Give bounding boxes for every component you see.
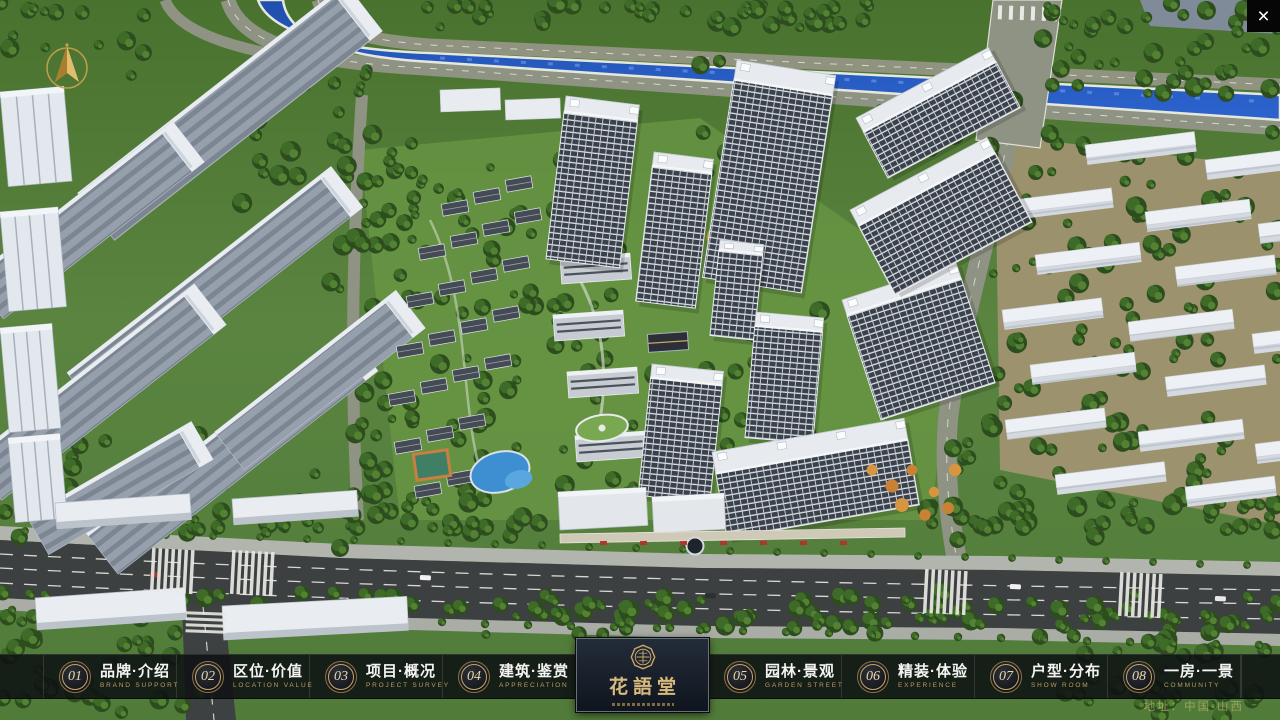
- nav-number: 08: [1132, 669, 1146, 685]
- nav-label-zh: 区位·价值: [233, 664, 314, 680]
- nav-label-en: COMMUNITY: [1164, 682, 1234, 689]
- nav-number: 04: [467, 669, 481, 685]
- nav-number: 07: [999, 669, 1013, 685]
- nav-item-location-value[interactable]: 02 区位·价值 LOCATION VALUE: [177, 655, 310, 698]
- close-icon: ×: [1257, 6, 1269, 27]
- navbar-spacer-left: [0, 655, 44, 698]
- project-logo-button[interactable]: 花語堂: [576, 638, 709, 712]
- nav-number-badge: 02: [192, 661, 224, 693]
- bottom-navigation-bar: 01 品牌·介绍 BRAND SUPPORT 02 区位·价值 LOCATION…: [0, 654, 1280, 699]
- logo-subtitle-text: [612, 703, 674, 706]
- nav-label-en: SHOW ROOM: [1031, 682, 1101, 689]
- nav-number: 01: [68, 669, 82, 685]
- nav-item-project-survey[interactable]: 03 项目·概况 PROJECT SURVEY: [310, 655, 443, 698]
- nav-item-garden-landscape[interactable]: 05 园林·景观 GARDEN STREET: [709, 655, 842, 698]
- nav-item-brand-intro[interactable]: 01 品牌·介绍 BRAND SUPPORT: [44, 655, 177, 698]
- sales-presentation-screen: × 01 品牌·介绍 BRAND SUPPORT 02 区位·价值 LOCATI…: [0, 0, 1280, 720]
- nav-label-zh: 精装·体验: [898, 664, 968, 680]
- nav-item-room-view[interactable]: 08 一房·一景 COMMUNITY: [1108, 655, 1241, 698]
- nav-number: 06: [866, 669, 880, 685]
- project-logo-title: 花語堂: [604, 672, 681, 699]
- nav-label-zh: 一房·一景: [1164, 664, 1234, 680]
- navbar-spacer-right: [1241, 655, 1280, 698]
- nav-label-en: EXPERIENCE: [898, 682, 968, 689]
- nav-label-zh: 项目·概况: [366, 664, 450, 680]
- nav-item-unit-distribution[interactable]: 07 户型·分布 SHOW ROOM: [975, 655, 1108, 698]
- nav-label-zh: 园林·景观: [765, 664, 844, 680]
- nav-label-en: GARDEN STREET: [765, 682, 844, 689]
- nav-item-architecture[interactable]: 04 建筑·鉴赏 APPRECIATION: [443, 655, 576, 698]
- masterplan-aerial-render[interactable]: [0, 0, 1280, 720]
- nav-number: 05: [733, 669, 747, 685]
- nav-number-badge: 03: [325, 661, 357, 693]
- nav-number-badge: 04: [458, 661, 490, 693]
- nav-number-badge: 07: [990, 661, 1022, 693]
- project-address: 地址：中国·山西: [1144, 698, 1244, 714]
- nav-label-en: PROJECT SURVEY: [366, 682, 450, 689]
- nav-number-badge: 01: [59, 661, 91, 693]
- nav-label-en: APPRECIATION: [499, 682, 569, 689]
- nav-number-badge: 06: [857, 661, 889, 693]
- logo-seal-icon: [630, 644, 656, 670]
- nav-label-en: BRAND SUPPORT: [100, 682, 179, 689]
- nav-label-zh: 品牌·介绍: [100, 664, 179, 680]
- nav-number: 02: [201, 669, 215, 685]
- nav-number-badge: 08: [1123, 661, 1155, 693]
- nav-number-badge: 05: [724, 661, 756, 693]
- nav-number: 03: [334, 669, 348, 685]
- nav-label-zh: 建筑·鉴赏: [499, 664, 569, 680]
- nav-label-en: LOCATION VALUE: [233, 682, 314, 689]
- nav-item-decoration-experience[interactable]: 06 精装·体验 EXPERIENCE: [842, 655, 975, 698]
- close-button[interactable]: ×: [1247, 0, 1280, 32]
- nav-label-zh: 户型·分布: [1031, 664, 1101, 680]
